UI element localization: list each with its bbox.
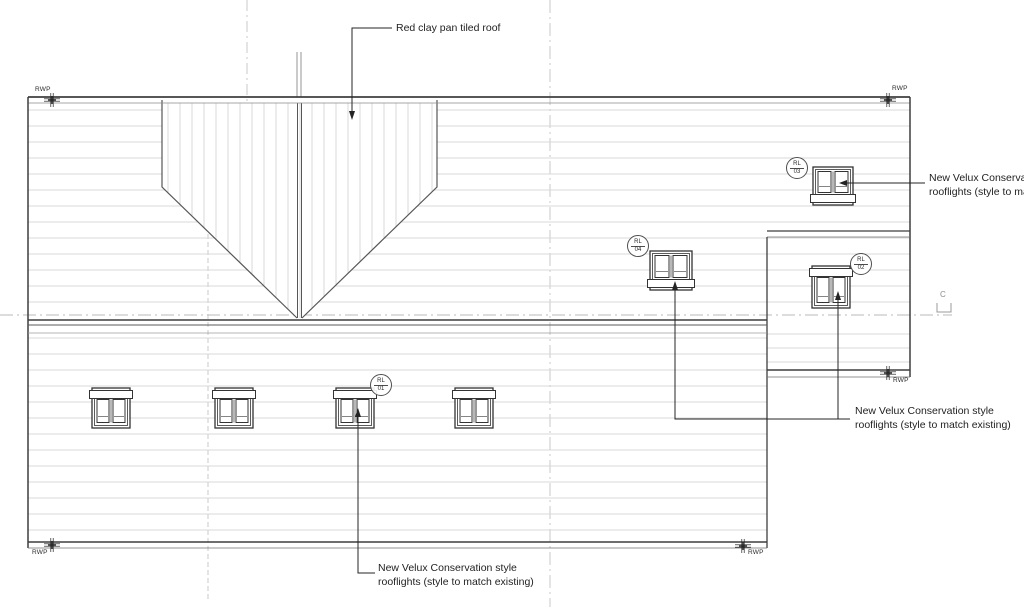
rwp-label-wing: RWP	[893, 377, 909, 384]
leader-roof-material	[352, 28, 392, 112]
annotation-roof-material: Red clay pan tiled roof	[396, 21, 500, 35]
annotation-rooflight-mid-right: New Velux Conservation style rooflights …	[855, 404, 1011, 432]
rooflight-symbol	[90, 388, 133, 428]
tag-number: 02	[858, 265, 865, 272]
annotation-line: rooflights (style to matc	[929, 185, 1024, 199]
rooflight-symbol	[213, 388, 256, 428]
gable-projection	[162, 52, 437, 318]
tag-code: RL	[854, 257, 868, 265]
tag-code: RL	[790, 161, 804, 169]
annotation-line: rooflights (style to match existing)	[855, 418, 1011, 432]
flashing-band	[810, 269, 853, 277]
rooflight-symbol	[811, 167, 856, 205]
flashing-band	[334, 391, 377, 399]
roof-outline	[28, 97, 910, 548]
rooflight-tag-rl04: RL 04	[627, 235, 649, 257]
flashing-band	[90, 391, 133, 399]
tag-code: RL	[374, 378, 388, 386]
rwp-label-top-left: RWP	[35, 86, 51, 93]
annotation-line: New Velux Conservatio	[929, 171, 1024, 185]
rooflight-tag-rl03: RL 03	[786, 157, 808, 179]
flashing-band	[453, 391, 496, 399]
flashing-band	[811, 195, 856, 203]
flue-line	[297, 52, 301, 97]
leader-rooflight-01	[358, 414, 375, 573]
rwp-label-bottom-left: RWP	[32, 549, 48, 556]
rwp-label-bottom-right: RWP	[748, 549, 764, 556]
annotation-line: New Velux Conservation style	[855, 404, 1011, 418]
grid-label-c: C	[940, 290, 946, 299]
rooflight-symbol	[648, 251, 695, 290]
rwp-label-top-right: RWP	[892, 85, 908, 92]
annotation-rooflight-top-right: New Velux Conservatio rooflights (style …	[929, 171, 1024, 199]
tag-code: RL	[631, 239, 645, 247]
rooflight-symbol	[453, 388, 496, 428]
rooflight-symbol	[334, 388, 377, 428]
rooflight-symbol	[810, 266, 853, 308]
flashing-band	[213, 391, 256, 399]
grid-bracket-icon	[937, 303, 951, 312]
flashing-band	[648, 280, 695, 288]
tag-number: 01	[378, 386, 385, 393]
rwp-cross-icon	[880, 93, 896, 107]
roof-plan-page: Red clay pan tiled roof New Velux Conser…	[0, 0, 1024, 607]
tag-number: 03	[794, 169, 801, 176]
rwp-cross-icon	[44, 93, 60, 107]
annotation-rooflight-bottom: New Velux Conservation style rooflights …	[378, 561, 534, 589]
roof-plan-drawing	[0, 0, 1024, 607]
annotation-line: New Velux Conservation style	[378, 561, 534, 575]
centerlines	[0, 0, 952, 607]
tag-number: 04	[635, 247, 642, 254]
rooflight-tag-rl01: RL 01	[370, 374, 392, 396]
annotation-line: rooflights (style to match existing)	[378, 575, 534, 589]
rooflight-tag-rl02: RL 02	[850, 253, 872, 275]
